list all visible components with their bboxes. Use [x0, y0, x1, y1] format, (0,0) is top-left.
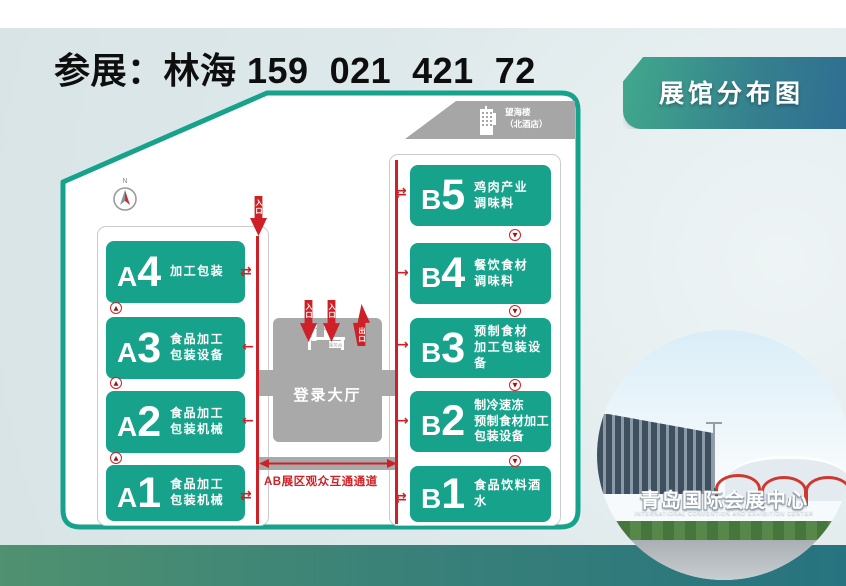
- flow-line-a: [256, 236, 259, 524]
- venue-sign-subtext: INTERNATIONAL CONVENTION AND EXHIBITION …: [597, 511, 846, 517]
- hotel-building-icon: [477, 105, 497, 135]
- hall-a3-id: A3: [117, 327, 161, 370]
- map-title-badge-label: 展馆分布图: [623, 57, 846, 131]
- right-arrow-b4-icon: →: [397, 266, 409, 280]
- hall-b2: B2 制冷速冻预制食材加工包装设备: [410, 391, 551, 452]
- hall-a1: A1 食品加工包装机械: [106, 465, 245, 521]
- right-arrow-b3-icon: →: [397, 338, 409, 352]
- hall-b3-id: B3: [421, 327, 465, 370]
- compass-icon: N: [107, 174, 143, 216]
- circle-up-arrow-icon: ▲: [110, 302, 122, 314]
- hall-b3-desc: 预制食材加工包装设备: [474, 324, 551, 371]
- contact-title: 参展：林海 159 021 421 72: [54, 42, 536, 94]
- hall-a2-id: A2: [117, 401, 161, 444]
- corridor-label: AB展区观众互通通道: [264, 473, 378, 489]
- hall-b2-desc: 制冷速冻预制食材加工包装设备: [474, 398, 549, 445]
- corridor-double-arrow-icon: [259, 458, 397, 469]
- left-arrow-a2-icon: ←: [242, 414, 254, 428]
- top-white-strip: [0, 0, 846, 28]
- circle-down-arrow-icon: ▼: [509, 229, 521, 241]
- hall-b2-id: B2: [421, 400, 465, 443]
- hall-a4-id: A4: [117, 251, 161, 294]
- hall-b1: B1 食品饮料酒水: [410, 466, 551, 522]
- hall-a3-desc: 食品加工包装设备: [170, 332, 224, 364]
- swap-arrow-b5-icon: ⇄: [395, 186, 407, 200]
- lobby-label: 登录大厅: [273, 384, 382, 405]
- hall-b5-id: B5: [421, 174, 465, 217]
- hall-b1-id: B1: [421, 473, 465, 516]
- hall-b5: B5 鸡肉产业调味料: [410, 165, 551, 226]
- circle-up-arrow-icon: ▲: [110, 377, 122, 389]
- hall-a3: A3 食品加工包装设备: [106, 317, 245, 379]
- svg-text:N: N: [122, 178, 127, 185]
- photo-road: [597, 540, 846, 580]
- hall-a1-desc: 食品加工包装机械: [170, 477, 224, 509]
- right-arrow-b2-icon: →: [397, 414, 409, 428]
- venue-sign-text: 青岛国际会展中心: [597, 484, 846, 513]
- hotel-label: 望海楼 （北酒店）: [505, 107, 548, 131]
- hall-b4-desc: 餐饮食材调味料: [474, 258, 528, 290]
- swap-arrow-b1-icon: ⇄: [395, 491, 407, 505]
- hall-b4: B4 餐饮食材调味料: [410, 243, 551, 304]
- floorplan-card: 望海楼 （北酒店） N A4 加工包装 A3 食品加工包装设备 A2 食品加工包…: [55, 90, 582, 530]
- poster-page: { "page": { "top_title": "参展：林海 159 021 …: [0, 0, 846, 586]
- swap-arrow-a4-icon: ⇄: [240, 265, 252, 279]
- swap-arrow-a1-icon: ⇄: [240, 489, 252, 503]
- hall-b1-desc: 食品饮料酒水: [474, 478, 551, 510]
- hall-b4-id: B4: [421, 252, 465, 295]
- svg-text:服务台: 服务台: [329, 342, 343, 349]
- venue-photo: 青岛国际会展中心 INTERNATIONAL CONVENTION AND EX…: [597, 330, 846, 580]
- hall-a1-id: A1: [117, 472, 161, 515]
- photo-hedge: [597, 521, 846, 540]
- hall-b5-desc: 鸡肉产业调味料: [474, 180, 528, 212]
- circle-down-arrow-icon: ▼: [509, 455, 521, 467]
- hall-a4: A4 加工包装: [106, 241, 245, 303]
- hall-a2-desc: 食品加工包装机械: [170, 406, 224, 438]
- photo-building-left: [597, 412, 715, 494]
- hall-a2: A2 食品加工包装机械: [106, 391, 245, 453]
- circle-down-arrow-icon: ▼: [509, 379, 521, 391]
- map-title-badge: 展馆分布图: [623, 57, 846, 129]
- circle-down-arrow-icon: ▼: [509, 305, 521, 317]
- circle-up-arrow-icon: ▲: [110, 452, 122, 464]
- hall-b3: B3 预制食材加工包装设备: [410, 318, 551, 378]
- left-arrow-a3-icon: ←: [242, 340, 254, 354]
- hall-a4-desc: 加工包装: [170, 264, 224, 280]
- photo-light-pole: [713, 422, 715, 488]
